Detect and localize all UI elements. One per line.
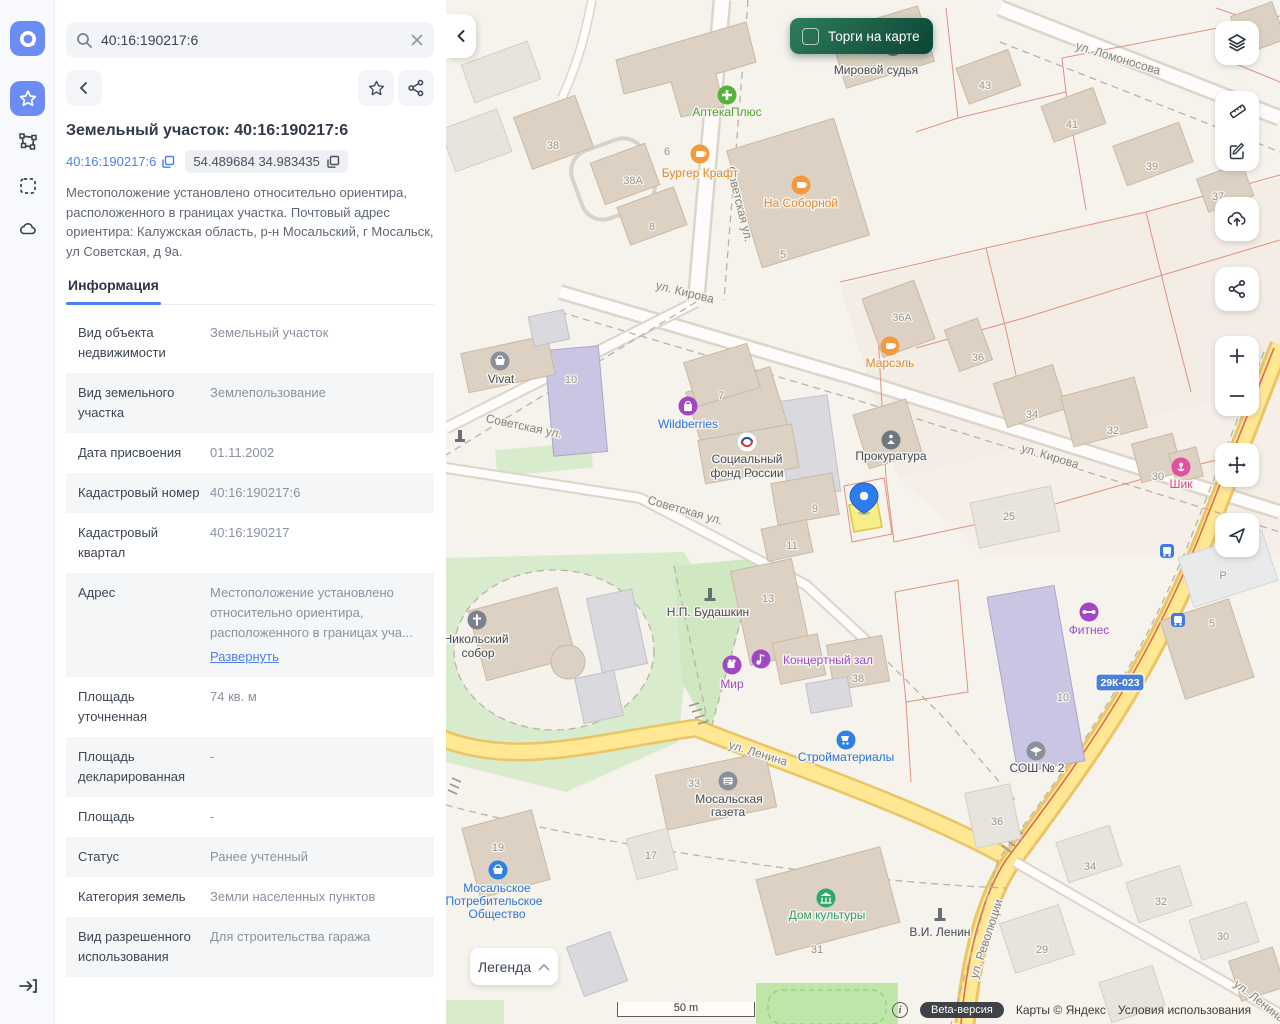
plus-icon xyxy=(1228,347,1246,365)
base-map: 29К-023 ул. Ломоносова Советская ул. ул.… xyxy=(446,0,1280,1024)
svg-text:Мосальская: Мосальская xyxy=(695,792,762,806)
svg-text:31: 31 xyxy=(811,944,823,956)
sidebar-item-favorites[interactable] xyxy=(10,81,45,116)
upload-button[interactable] xyxy=(1215,197,1259,241)
scale-bar: 50 m xyxy=(617,1002,755,1017)
svg-text:Марсэль: Марсэль xyxy=(866,356,915,370)
legend-button[interactable]: Легенда xyxy=(470,948,558,985)
measure-edit-group xyxy=(1215,91,1259,171)
svg-text:29: 29 xyxy=(1036,944,1048,956)
svg-text:43: 43 xyxy=(979,80,991,92)
svg-text:6: 6 xyxy=(664,146,670,158)
svg-text:38: 38 xyxy=(547,140,559,152)
svg-text:Мир: Мир xyxy=(720,677,744,691)
info-table: Вид объекта недвижимости Земельный участ… xyxy=(66,313,434,977)
panel-toolbar xyxy=(66,70,434,106)
cloud-upload-icon xyxy=(1225,208,1249,230)
svg-text:30: 30 xyxy=(1152,471,1164,483)
svg-text:В.И. Ленин: В.И. Ленин xyxy=(909,925,970,939)
svg-text:Общество: Общество xyxy=(468,907,525,921)
search-icon xyxy=(76,32,93,49)
svg-text:СОШ № 2: СОШ № 2 xyxy=(1010,761,1065,775)
chevron-up-icon xyxy=(538,963,550,971)
svg-text:39: 39 xyxy=(1146,161,1158,173)
zoom-group xyxy=(1215,336,1259,416)
svg-text:5: 5 xyxy=(1209,618,1215,630)
svg-text:Дом культуры: Дом культуры xyxy=(789,908,866,922)
layers-button[interactable] xyxy=(1215,21,1259,65)
app-window: Земельный участок: 40:16:190217:6 40:16:… xyxy=(0,0,1280,1024)
cloud-icon xyxy=(17,218,39,240)
table-row: Статус Ранее учтенный xyxy=(66,837,434,877)
chevron-left-icon xyxy=(77,81,91,95)
svg-text:33: 33 xyxy=(688,778,700,790)
table-row-address: Адрес Местоположение установлено относит… xyxy=(66,573,434,677)
svg-text:34: 34 xyxy=(1026,409,1038,421)
svg-text:Мировой судья: Мировой судья xyxy=(834,63,918,77)
page-title: Земельный участок: 40:16:190217:6 xyxy=(66,122,434,140)
svg-text:36: 36 xyxy=(991,816,1003,828)
svg-text:Vivat: Vivat xyxy=(488,372,515,386)
svg-text:11: 11 xyxy=(786,540,797,552)
svg-text:32: 32 xyxy=(1155,896,1167,908)
svg-text:36А: 36А xyxy=(892,312,912,324)
table-row: Кадастровый квартал 40:16:190217 xyxy=(66,513,434,573)
table-row: Площадь декларированная - xyxy=(66,737,434,797)
svg-text:30: 30 xyxy=(1217,931,1229,943)
layers-icon xyxy=(1226,32,1248,54)
info-panel: Земельный участок: 40:16:190217:6 40:16:… xyxy=(55,0,446,1024)
svg-text:собор: собор xyxy=(461,646,494,660)
search-input[interactable] xyxy=(101,32,410,48)
active-tab-underline xyxy=(66,302,161,305)
minus-icon xyxy=(1228,387,1246,405)
road-badge: 29К-023 xyxy=(1096,674,1144,691)
svg-text:38: 38 xyxy=(852,673,864,685)
share-button[interactable] xyxy=(398,70,434,106)
search-bar xyxy=(66,22,434,58)
ruler-icon xyxy=(1227,101,1247,121)
svg-text:Социальный: Социальный xyxy=(712,452,783,466)
svg-text:Фитнес: Фитнес xyxy=(1069,623,1110,637)
measure-button[interactable] xyxy=(1215,91,1259,131)
coordinates-chip[interactable]: 54.489684 34.983435 xyxy=(185,150,348,173)
svg-text:газета: газета xyxy=(711,805,746,819)
svg-text:Стройматериалы: Стройматериалы xyxy=(798,750,895,764)
svg-text:29К-023: 29К-023 xyxy=(1100,677,1139,689)
svg-text:17: 17 xyxy=(645,850,657,862)
sidebar-item-polygon[interactable] xyxy=(10,124,45,159)
terms-link[interactable]: Условия использования xyxy=(1118,1003,1251,1017)
zoom-in-button[interactable] xyxy=(1215,336,1259,376)
table-row: Дата присвоения 01.11.2002 xyxy=(66,433,434,473)
beta-badge: Beta-версия xyxy=(920,1002,1004,1018)
svg-text:10: 10 xyxy=(565,374,577,386)
svg-text:На Соборной: На Соборной xyxy=(764,196,838,210)
svg-text:9: 9 xyxy=(812,503,818,515)
edit-icon xyxy=(1227,141,1247,161)
maps-copyright-link[interactable]: Карты © Яндекс xyxy=(1016,1003,1106,1017)
svg-text:8: 8 xyxy=(649,221,655,233)
svg-text:Бургер Крафт: Бургер Крафт xyxy=(662,166,739,180)
svg-text:Никольский: Никольский xyxy=(446,632,509,646)
svg-text:Мосальское: Мосальское xyxy=(463,881,531,895)
map-attribution: i Beta-версия Карты © Яндекс Условия исп… xyxy=(892,1002,1251,1018)
svg-text:P: P xyxy=(1219,570,1226,582)
icon-rail xyxy=(0,0,55,1024)
login-button[interactable] xyxy=(10,968,45,1003)
zoom-out-button[interactable] xyxy=(1215,376,1259,416)
table-row: Вид разрешенного использования Для строи… xyxy=(66,917,434,977)
svg-text:41: 41 xyxy=(1066,119,1078,131)
cadastral-number-chip[interactable]: 40:16:190217:6 xyxy=(66,154,175,169)
star-icon xyxy=(17,88,39,110)
svg-text:фонд России: фонд России xyxy=(710,466,783,480)
table-row: Площадь - xyxy=(66,797,434,837)
share-icon xyxy=(1227,279,1247,299)
svg-text:Шик: Шик xyxy=(1170,477,1194,491)
share-icon xyxy=(407,79,425,97)
select-area-icon xyxy=(17,175,39,197)
info-icon[interactable]: i xyxy=(892,1002,908,1018)
expand-link[interactable]: Развернуть xyxy=(210,647,279,667)
chip-row: 40:16:190217:6 54.489684 34.983435 xyxy=(66,150,434,173)
svg-text:19: 19 xyxy=(492,842,504,854)
object-description: Местоположение установлено относительно … xyxy=(66,183,434,261)
table-row: Площадь уточненная 74 кв. м xyxy=(66,677,434,737)
toggle-checkbox[interactable] xyxy=(802,28,819,45)
location-arrow-icon xyxy=(1227,525,1247,545)
table-row: Кадастровый номер 40:16:190217:6 xyxy=(66,473,434,513)
edit-button[interactable] xyxy=(1215,131,1259,171)
svg-text:10: 10 xyxy=(1057,692,1069,704)
locate-button[interactable] xyxy=(1215,513,1259,557)
polygon-icon xyxy=(17,131,39,153)
app-logo[interactable] xyxy=(10,21,45,56)
favorite-button[interactable] xyxy=(358,70,394,106)
login-icon xyxy=(17,975,39,997)
svg-text:5: 5 xyxy=(780,249,786,261)
svg-text:7: 7 xyxy=(718,390,724,402)
svg-text:25: 25 xyxy=(1003,511,1015,523)
svg-text:36: 36 xyxy=(972,352,984,364)
table-row: Категория земель Земли населенных пункто… xyxy=(66,877,434,917)
svg-text:Wildberries: Wildberries xyxy=(658,417,718,431)
clear-search-icon[interactable] xyxy=(410,33,424,47)
back-button[interactable] xyxy=(66,70,102,106)
svg-text:34: 34 xyxy=(1084,861,1096,873)
copy-icon[interactable] xyxy=(161,155,175,169)
svg-text:Прокуратура: Прокуратура xyxy=(855,449,926,463)
svg-text:38А: 38А xyxy=(623,175,643,187)
svg-text:32: 32 xyxy=(1107,425,1119,437)
trades-on-map-toggle[interactable]: Торги на карте xyxy=(790,18,933,54)
tab-bar: Информация xyxy=(66,273,434,305)
logo-icon xyxy=(17,28,39,50)
star-outline-icon xyxy=(367,79,386,98)
map-canvas[interactable]: 29К-023 ул. Ломоносова Советская ул. ул.… xyxy=(446,0,1280,1024)
table-row: Вид объекта недвижимости Земельный участ… xyxy=(66,313,434,373)
sidebar-item-select-area[interactable] xyxy=(10,168,45,203)
pan-button[interactable] xyxy=(1215,443,1259,487)
table-row: Вид земельного участка Землепользование xyxy=(66,373,434,433)
svg-text:Н.П. Будашкин: Н.П. Будашкин xyxy=(667,605,749,619)
collapse-panel-button[interactable] xyxy=(446,14,476,58)
sidebar-item-cloud[interactable] xyxy=(10,211,45,246)
move-icon xyxy=(1226,454,1248,476)
svg-text:Концертный зал: Концертный зал xyxy=(783,653,873,667)
tab-information[interactable]: Информация xyxy=(66,273,161,303)
svg-text:АптекаПлюс: АптекаПлюс xyxy=(692,105,761,119)
copy-icon[interactable] xyxy=(326,155,340,169)
chevron-left-icon xyxy=(455,29,467,43)
svg-text:13: 13 xyxy=(762,593,774,605)
share-map-button[interactable] xyxy=(1215,267,1259,311)
svg-text:Потребительское: Потребительское xyxy=(446,894,543,908)
